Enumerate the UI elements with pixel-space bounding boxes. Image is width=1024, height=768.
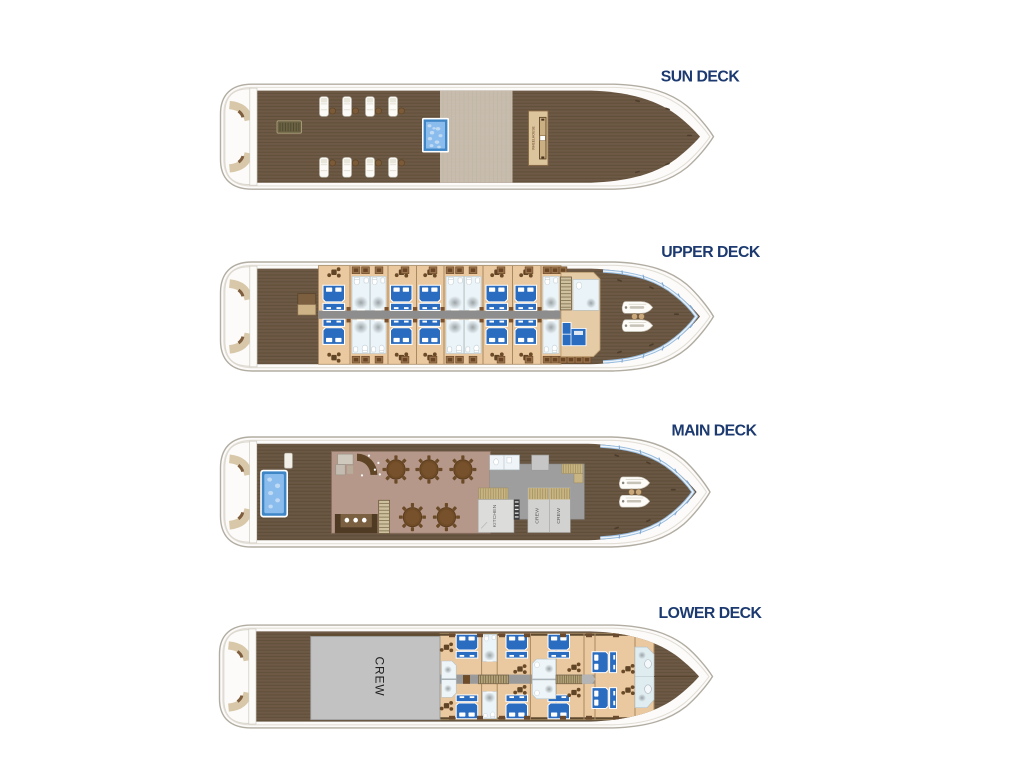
- svg-text:WHEELHOUSE: WHEELHOUSE: [531, 125, 535, 150]
- svg-text:CREW: CREW: [535, 508, 541, 524]
- svg-text:LOWER DECK: LOWER DECK: [659, 605, 763, 622]
- svg-text:MAIN DECK: MAIN DECK: [671, 423, 757, 440]
- svg-text:KITCHEN: KITCHEN: [492, 504, 498, 527]
- svg-text:UPPER DECK: UPPER DECK: [661, 244, 761, 261]
- svg-text:CREW: CREW: [372, 657, 386, 697]
- svg-text:CREW: CREW: [556, 508, 562, 524]
- svg-text:SUN DECK: SUN DECK: [661, 69, 741, 86]
